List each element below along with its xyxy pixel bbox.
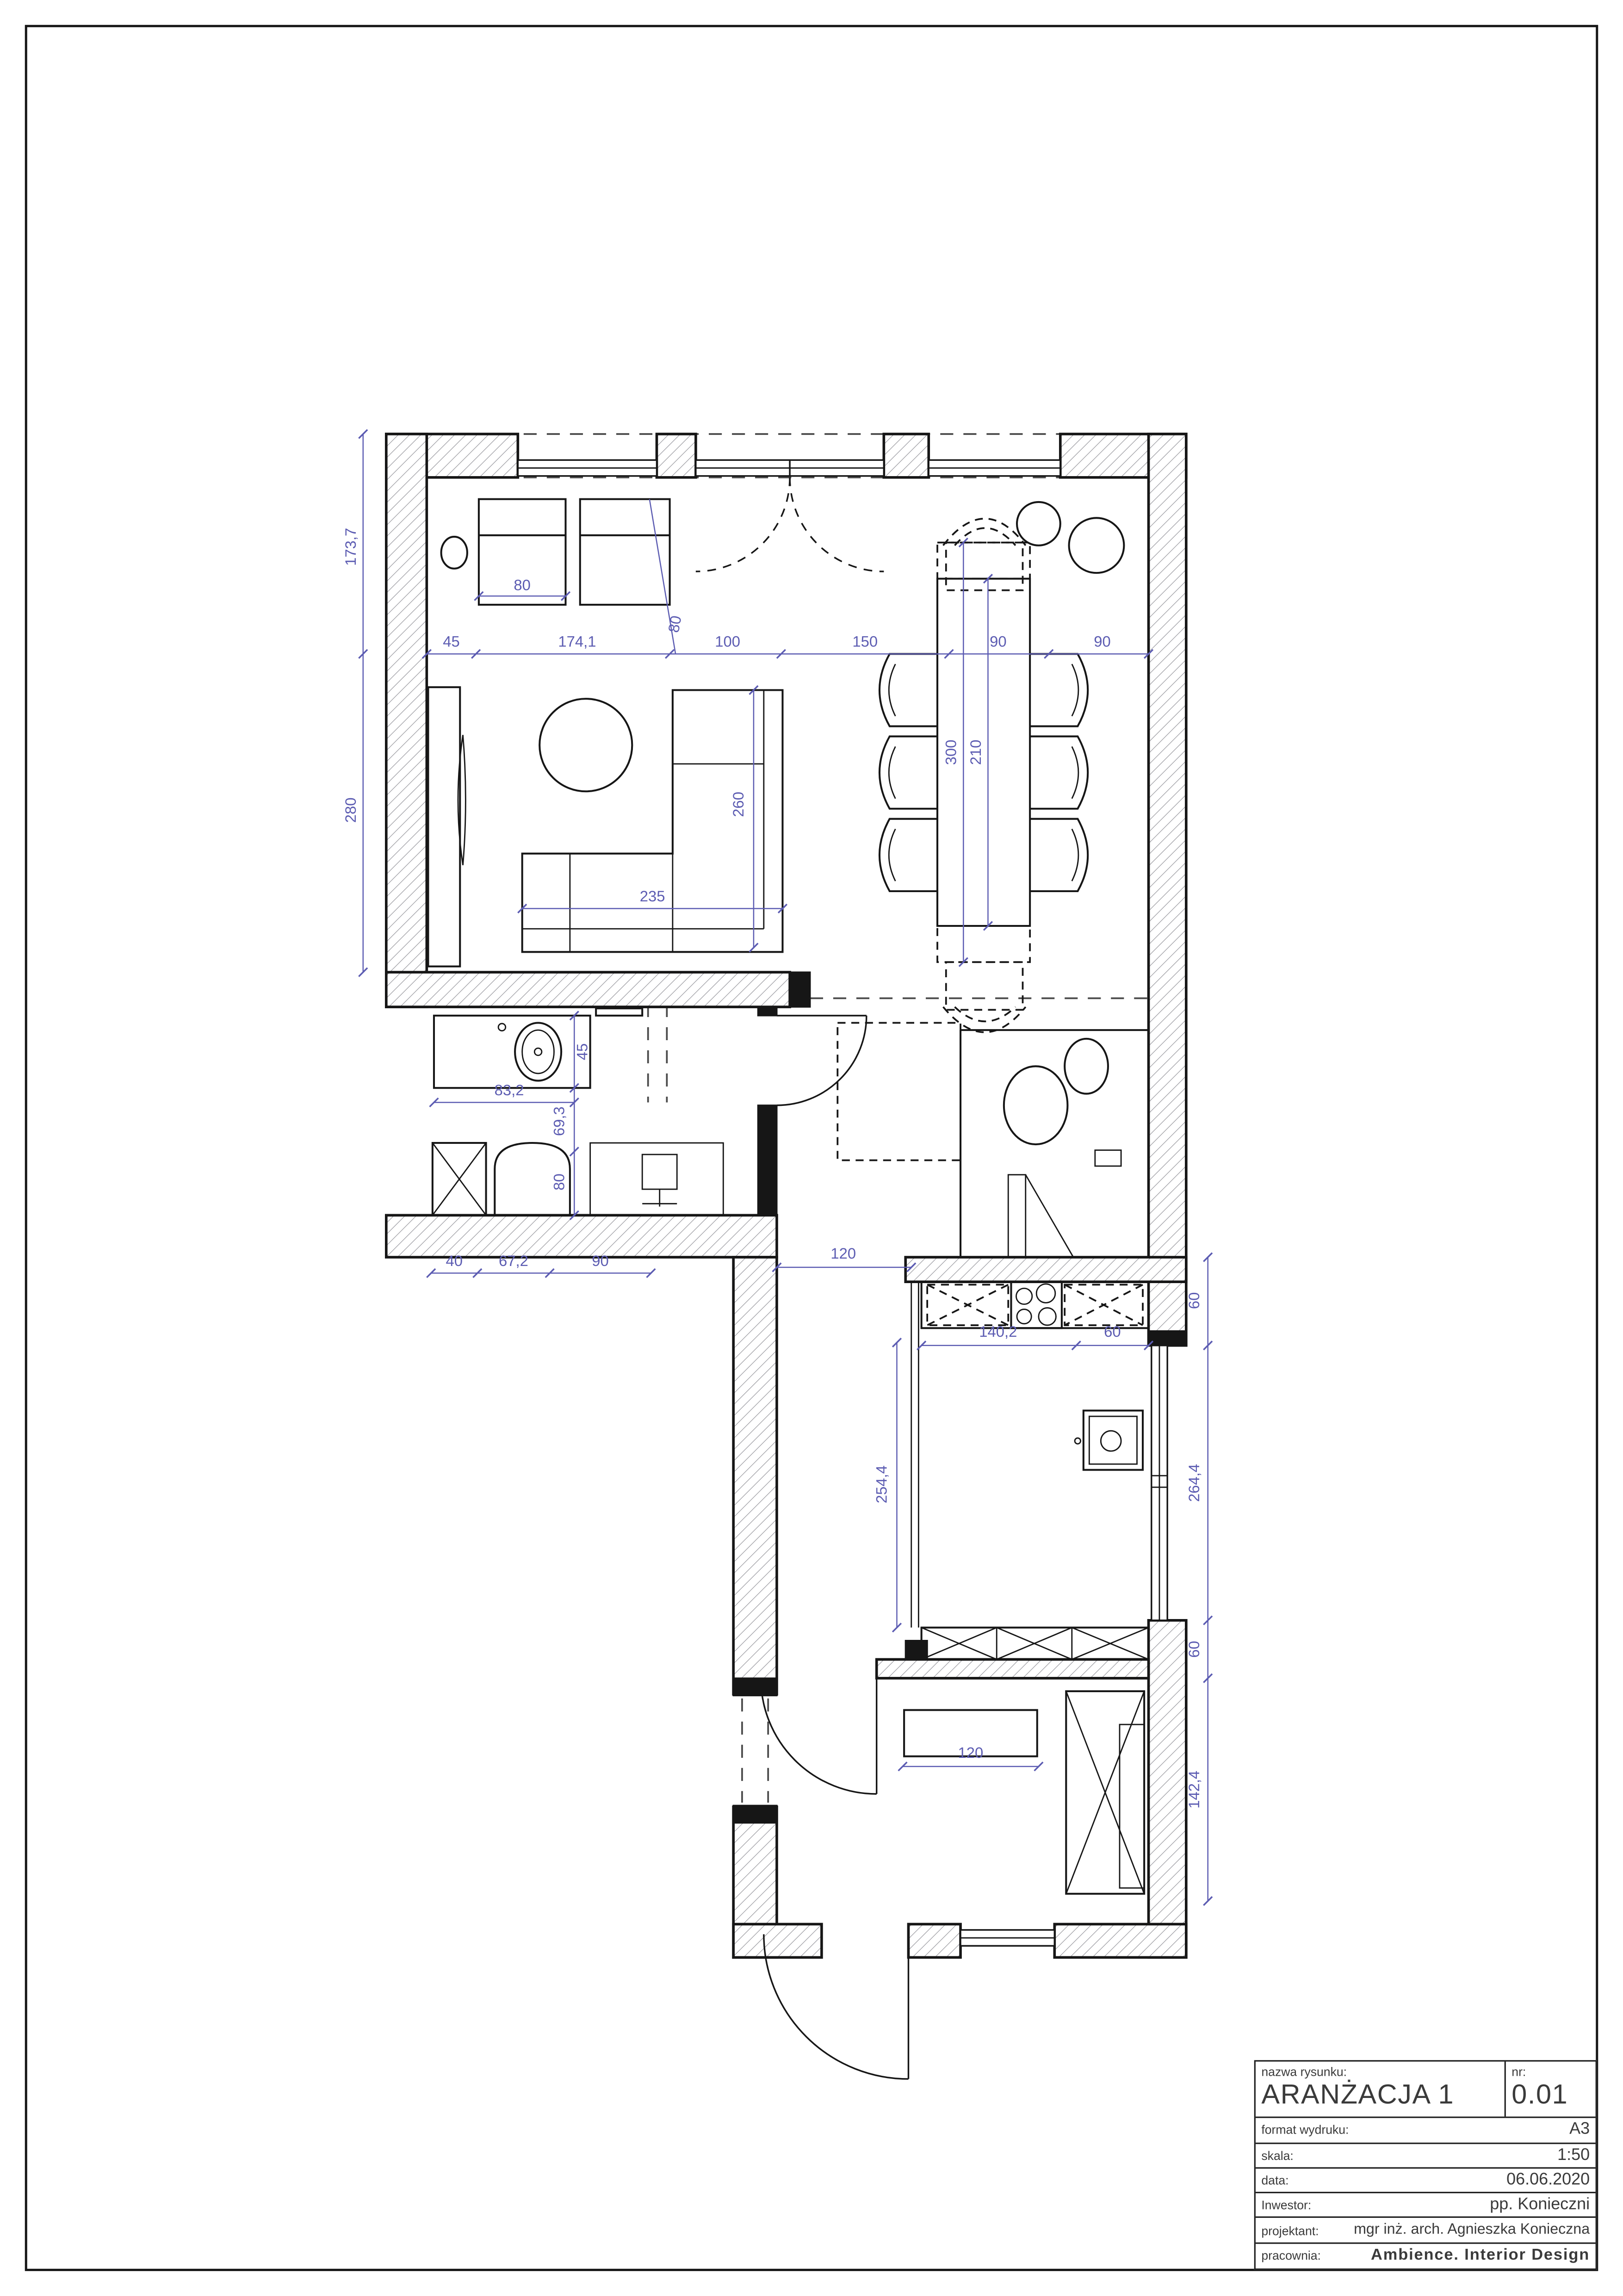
wall-bottom-3 [1054, 1924, 1186, 1957]
dim-label: 120 [830, 1245, 856, 1262]
balcony-door-leaf-left [696, 460, 790, 476]
dim-label: 210 [967, 739, 984, 765]
hob-counter [922, 1282, 1149, 1328]
wall-entry-top [877, 1659, 1149, 1678]
plant [1017, 502, 1060, 546]
wall-cabinet-dashed [1065, 1285, 1143, 1325]
living-room [428, 499, 782, 967]
dim-label: 174,1 [558, 633, 596, 650]
plant [1069, 518, 1124, 573]
dim-label: 264,4 [1185, 1464, 1202, 1502]
opening-jamb-top [733, 1678, 777, 1696]
window-living [518, 460, 657, 476]
wall-bath-partition-top [758, 1007, 777, 1016]
print-format-value: A3 [1349, 2122, 1590, 2139]
dim-label: 67,2 [499, 1252, 528, 1269]
window-kitchen [1152, 1346, 1167, 1620]
wall-pillar-2 [884, 434, 929, 478]
washing-machine [433, 1143, 486, 1215]
date-value: 06.06.2020 [1289, 2172, 1590, 2189]
dim-label: 80 [550, 1173, 567, 1191]
dim-label: 69,3 [550, 1106, 567, 1136]
dining-chair [1030, 819, 1088, 891]
dim-label: 80 [514, 577, 531, 594]
wall-bottom-2 [909, 1924, 961, 1957]
side-table [441, 537, 467, 569]
wall-bath-bottom [386, 1215, 777, 1257]
date-label: data: [1261, 2173, 1288, 2187]
opening-jamb-bottom [733, 1806, 777, 1823]
wall-right-lower [1149, 1620, 1186, 1957]
wall-pillar-1 [657, 434, 695, 478]
wall-partition-cap [905, 1641, 927, 1660]
bathroom [433, 1008, 723, 1215]
wall-kitchen-top [905, 1257, 1186, 1282]
designer-label: projektant: [1261, 2223, 1319, 2237]
entry-hall [904, 1691, 1144, 1894]
dining-chair [880, 736, 937, 808]
wall-cabinet-dashed [927, 1285, 1008, 1325]
drawing-number-label: nr: [1511, 2065, 1590, 2079]
shelf [1095, 1150, 1121, 1166]
dim-label: 60 [1185, 1292, 1202, 1309]
dining-chair [880, 819, 937, 891]
dim-label: 80 [665, 614, 685, 634]
dim-label: 60 [1185, 1641, 1202, 1658]
dining-chair [880, 654, 937, 726]
furniture-outline-dashed [837, 1023, 960, 1160]
dim-label: 142,4 [1185, 1771, 1202, 1809]
scale-label: skala: [1261, 2148, 1293, 2162]
dining-chair [1030, 736, 1088, 808]
dim-label: 60 [1104, 1323, 1121, 1340]
dining-chair-dashed [943, 962, 1026, 1032]
dim-label: 90 [990, 633, 1007, 650]
wall-bath-partition [758, 1105, 777, 1216]
drawing-number-value: 0.01 [1511, 2079, 1590, 2114]
coffee-table [539, 699, 632, 791]
mirror [596, 1008, 642, 1016]
dining-chair [1030, 654, 1088, 726]
window-dining [929, 460, 1060, 476]
wardrobe [1066, 1691, 1144, 1894]
drawing-name-value: ARANŻACJA 1 [1261, 2079, 1499, 2114]
dim-label: 45 [443, 633, 459, 650]
cooktop [1011, 1282, 1061, 1328]
title-block: nazwa rysunku: ARANŻACJA 1 nr: 0.01 form… [1254, 2060, 1597, 2270]
kitchen-sink [1075, 1410, 1143, 1470]
dim-label: 150 [852, 633, 878, 650]
wall-corridor-left [733, 1257, 777, 1957]
investor-value: pp. Konieczni [1311, 2197, 1590, 2214]
scale-value: 1:50 [1294, 2147, 1590, 2164]
studio-value: Ambience. Interior Design [1321, 2247, 1590, 2265]
investor-label: Inwestor: [1261, 2198, 1311, 2212]
tv-cabinet [428, 687, 460, 966]
corner-sofa [522, 690, 783, 952]
faucet [498, 1024, 506, 1031]
dim-label: 173,7 [342, 528, 359, 566]
windows [518, 460, 1167, 1946]
dining-area [880, 502, 1124, 1032]
armchair [580, 499, 670, 605]
tall-unit-door-swing [1008, 1175, 1073, 1257]
dim-label: 254,4 [873, 1465, 890, 1503]
dim-label: 120 [958, 1744, 984, 1761]
dim-label: 100 [715, 633, 740, 650]
dim-label: 280 [342, 798, 359, 823]
dim-label: 300 [942, 739, 960, 765]
studio-label: pracownia: [1261, 2249, 1321, 2263]
dim-label: 40 [446, 1252, 463, 1269]
drawing-sheet: 45 174,1 100 150 90 90 80 80 173,7 280 2… [0, 0, 1623, 2296]
wall-left [386, 434, 427, 1007]
wall-opening [731, 1695, 780, 1806]
balcony-door-leaf-right [790, 460, 884, 476]
tap [1075, 1438, 1081, 1444]
balcony-door-swing-right [790, 478, 884, 571]
dim-label: 90 [1094, 633, 1110, 650]
dim-label: 45 [573, 1043, 590, 1061]
drawing-name-label: nazwa rysunku: [1261, 2065, 1499, 2079]
dim-label: 83,2 [495, 1081, 524, 1098]
shower [590, 1143, 724, 1215]
base-cabinet-row [922, 1627, 1149, 1659]
window-jamb-top [1149, 1331, 1186, 1345]
floor-plan: 45 174,1 100 150 90 90 80 80 173,7 280 2… [0, 0, 1623, 2296]
window-entry [960, 1930, 1054, 1946]
table-extension-top [937, 542, 1030, 578]
plant [1004, 1066, 1068, 1144]
wall-right-upper [1149, 434, 1186, 1346]
print-format-label: format wydruku: [1261, 2123, 1349, 2137]
storage-room [837, 1023, 1148, 1258]
wall-cap [790, 972, 810, 1007]
dim-label: 260 [730, 792, 747, 817]
table-extension-bottom [937, 926, 1030, 962]
balcony-door-swing-left [696, 478, 790, 571]
wall-bottom-1 [733, 1924, 822, 1957]
dim-label: 90 [592, 1252, 608, 1269]
designer-value: mgr inż. arch. Agnieszka Konieczna [1319, 2222, 1590, 2238]
dim-label: 140,2 [979, 1323, 1017, 1340]
plant [1065, 1039, 1108, 1094]
dim-label: 235 [640, 887, 665, 905]
wall-living-bottom [386, 972, 790, 1007]
bathroom-door [777, 1016, 867, 1105]
vanity [434, 1016, 590, 1088]
